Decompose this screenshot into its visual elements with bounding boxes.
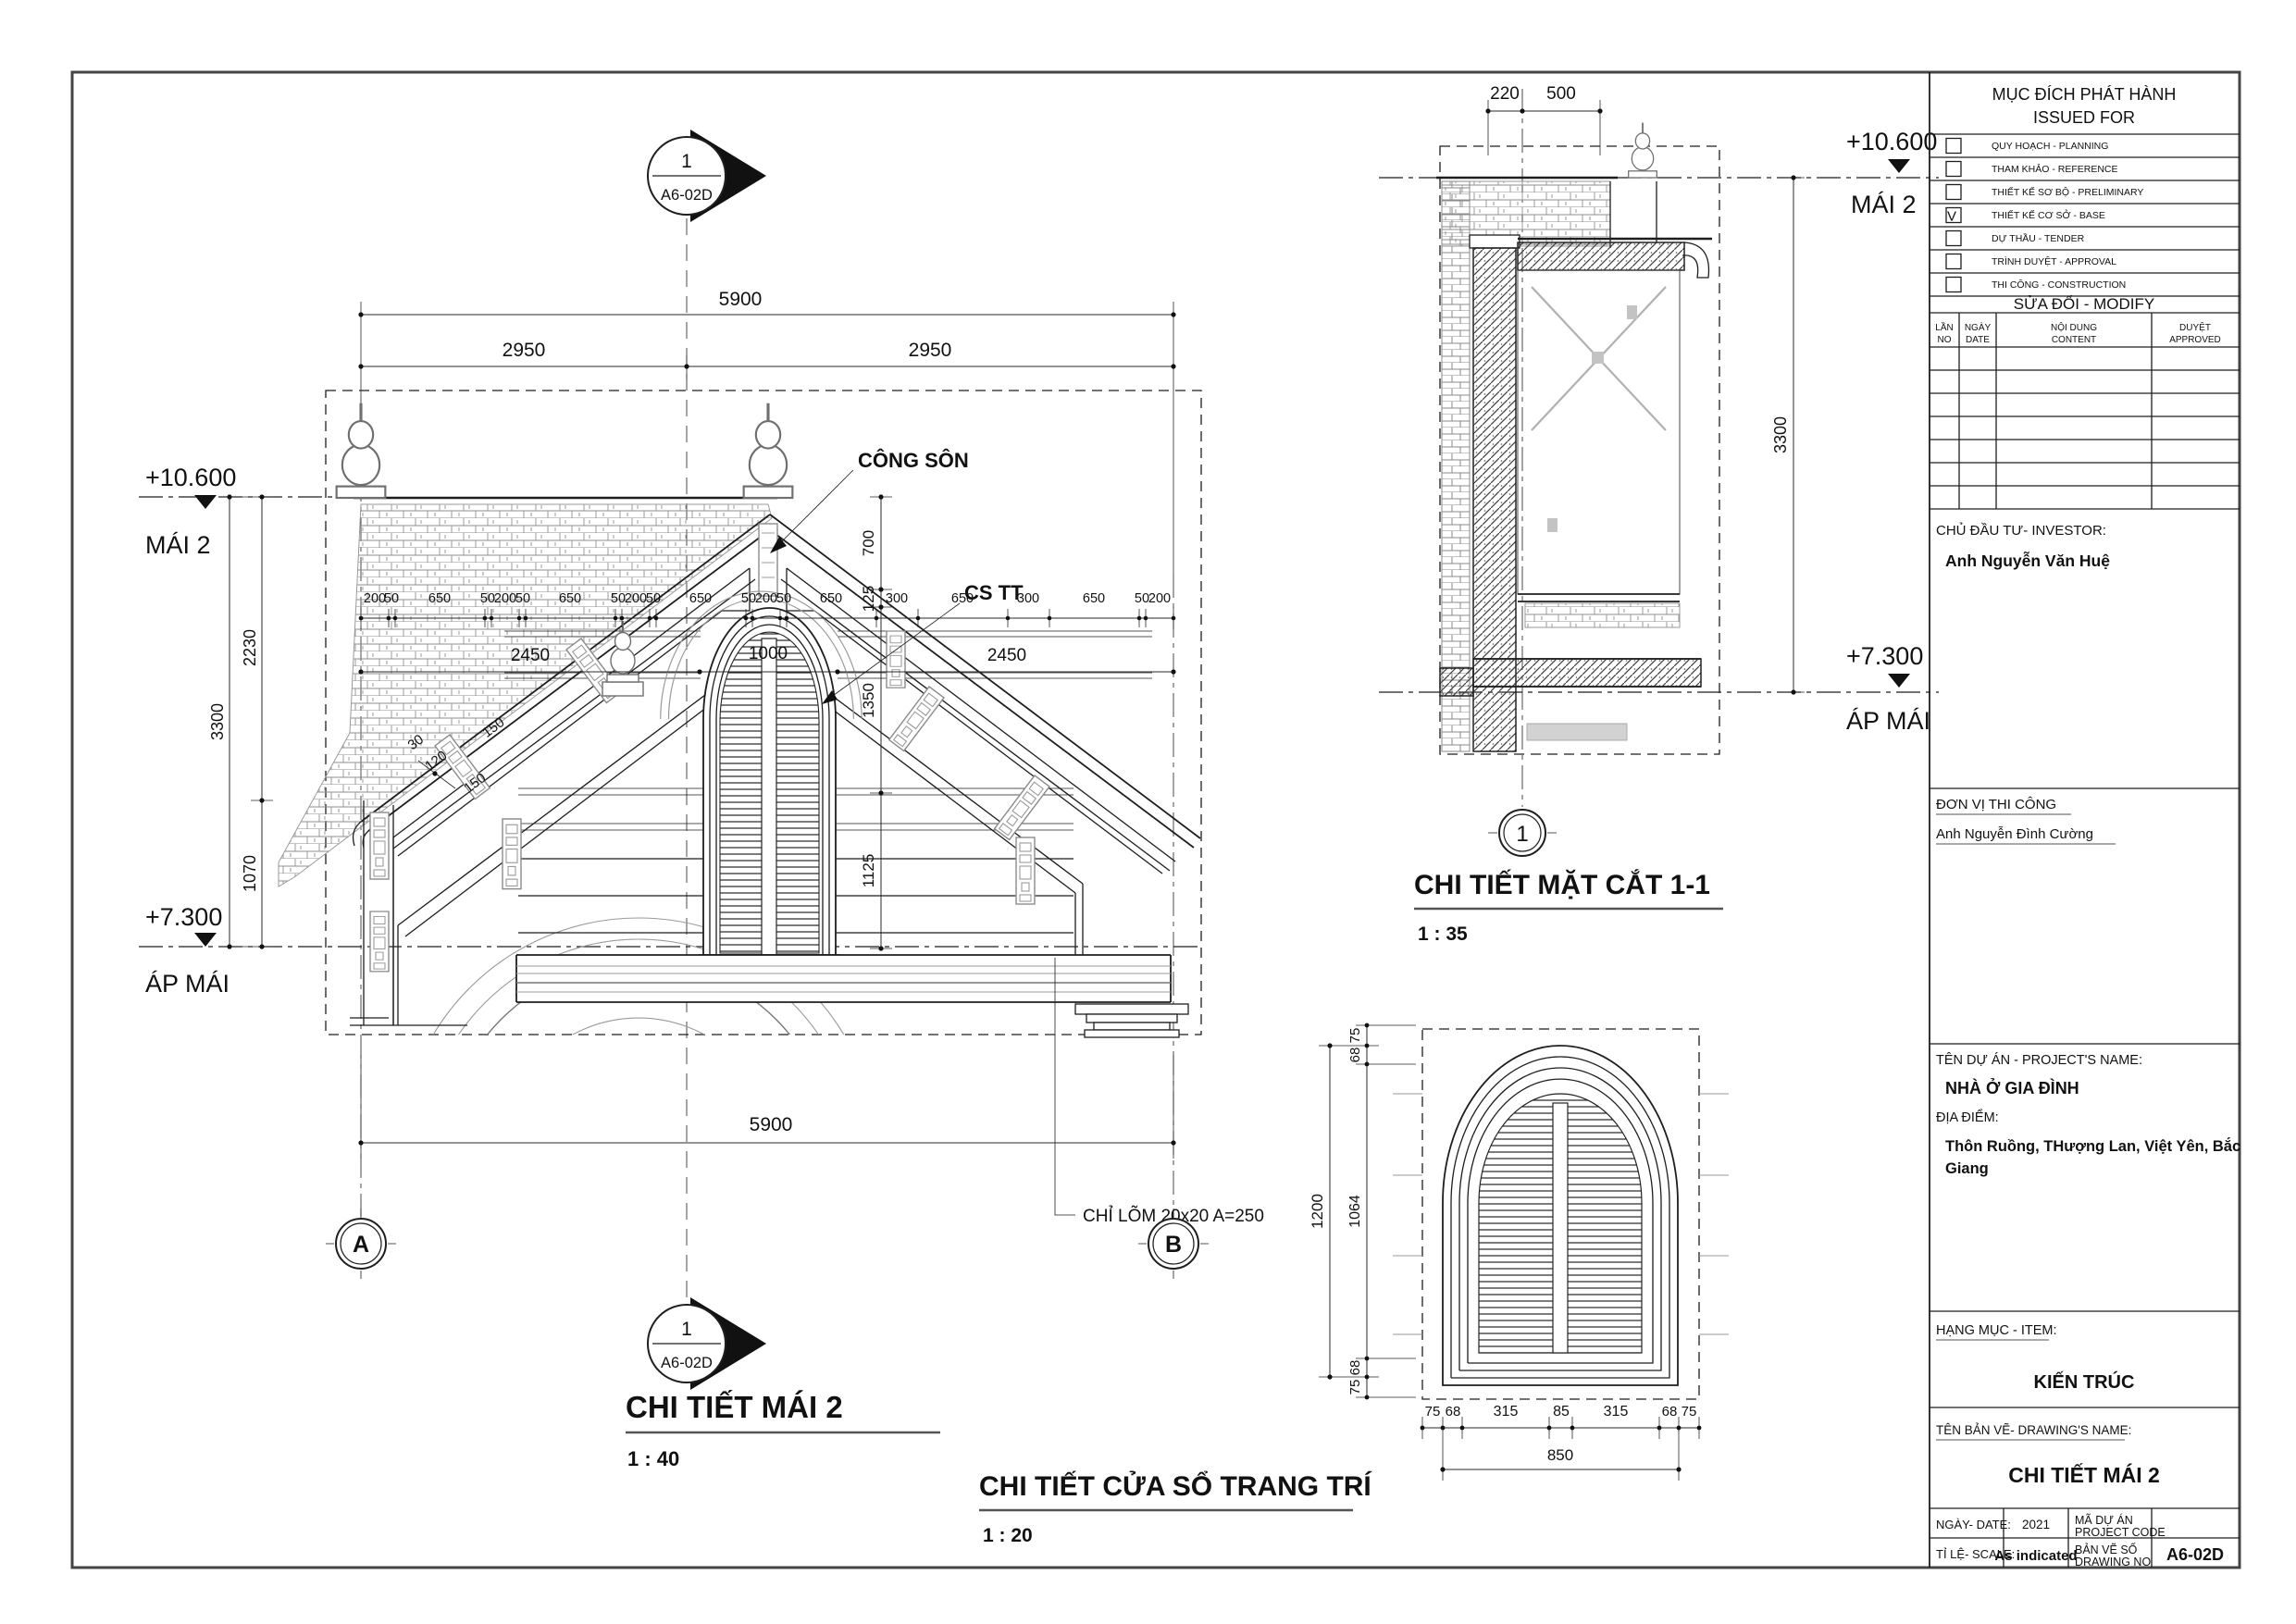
gourd-finial-icon: [744, 403, 793, 498]
item-value: KIẾN TRÚC: [2034, 1370, 2135, 1393]
date-label: NGÀY- DATE:: [1936, 1518, 2011, 1531]
checkbox-approval: [1946, 254, 1961, 269]
dim-label: 125: [860, 586, 877, 612]
dim-label: 50: [480, 591, 495, 606]
contractor-section: ĐƠN VỊ THI CÔNG Anh Nguyễn Đình Cường: [1936, 797, 2116, 844]
level-triangle-icon: [1888, 159, 1910, 173]
project-section: TÊN DỰ ÁN - PROJECT'S NAME: NHÀ Ở GIA ĐÌ…: [1936, 1052, 2240, 1177]
callout-sheet: A6-02D: [661, 1355, 713, 1371]
issued-for-section: MỤC ĐÍCH PHÁT HÀNH ISSUED FOR V QUY HOẠC…: [1946, 85, 2176, 292]
dim-label: 50: [646, 591, 661, 606]
investor-label: CHỦ ĐẦU TƯ- INVESTOR:: [1936, 522, 2106, 539]
dim-label: 3300: [1771, 416, 1790, 453]
modify-col-header: CONTENT: [2052, 335, 2096, 345]
dim-label: 200: [364, 591, 386, 606]
grid-letter: 1: [1516, 822, 1528, 847]
dim-label: 650: [559, 591, 581, 606]
dim-label: 700: [860, 530, 877, 556]
grid-letter: A: [353, 1232, 369, 1258]
dim-label: 68: [1446, 1404, 1461, 1419]
dim-label: 650: [820, 591, 842, 606]
modify-col-header: DUYỆT: [2179, 321, 2211, 333]
dim-label: 2450: [987, 646, 1026, 665]
drawing-no-value: A6-02D: [2166, 1545, 2224, 1564]
view-title: CHI TIẾT MÁI 2: [626, 1390, 843, 1424]
project-label: TÊN DỰ ÁN - PROJECT'S NAME:: [1936, 1052, 2142, 1068]
carved-post: [370, 812, 389, 879]
section-gray-block: [1527, 724, 1627, 740]
window-left-dimensions: 1200 75 68 1064 68 75: [1309, 1023, 1416, 1400]
dim-label: 1125: [860, 854, 877, 888]
modify-section: SỬA ĐỔI - MODIFY LẦN NO NGÀY DATE NỘI DU…: [1935, 295, 2221, 345]
view-scale: 1 : 35: [1418, 924, 1468, 945]
carved-post: [1016, 837, 1035, 904]
drawing-sheet: 5900 2950 2950 200 50 650 50 200 50 650 …: [0, 0, 2296, 1624]
checkbox-planning: [1946, 139, 1961, 154]
carved-post: [370, 911, 389, 972]
window-mullion: [762, 638, 776, 955]
dim-label: 3300: [208, 703, 227, 740]
gourd-finial-icon: [337, 403, 386, 498]
section-detail-view: 220 500 3300 +10.600 MÁI 2 +7.300 ÁP MÁI: [1379, 84, 1939, 945]
section-top-slab: [1518, 242, 1684, 270]
dim-label: 68: [1662, 1404, 1678, 1419]
view-title: CHI TIẾT MẶT CẮT 1-1: [1414, 869, 1710, 900]
level-name: ÁP MÁI: [1846, 707, 1930, 735]
dim-label: 50: [741, 591, 756, 606]
dim-label: 68: [1347, 1048, 1363, 1063]
dim-label: 75: [1347, 1380, 1363, 1395]
gourd-finial-icon: [1629, 123, 1657, 178]
section-attic-void: [1518, 270, 1680, 594]
section-slab-step: [1440, 668, 1473, 696]
investor-name: Anh Nguyễn Văn Huệ: [1945, 551, 2110, 570]
annotation-label: CS TT: [964, 581, 1024, 604]
right-column-dimensions: 700 125 1350 1125: [860, 494, 892, 950]
dim-label: 200: [625, 591, 647, 606]
dim-label: 850: [1547, 1446, 1573, 1464]
checkbox-construction: [1946, 278, 1961, 292]
dim-label: 85: [1553, 1404, 1570, 1419]
dim-label: 1000: [749, 644, 788, 663]
issued-item-label: QUY HOẠCH - PLANNING: [1992, 141, 2108, 152]
left-wall: [350, 800, 467, 1025]
section-view-title: CHI TIẾT MẶT CẮT 1-1 1 : 35: [1414, 869, 1723, 945]
dim-label: 220: [1490, 84, 1520, 104]
dim-label: 50: [515, 591, 530, 606]
modify-col-header: LẦN: [1935, 321, 1953, 333]
dim-label: 50: [611, 591, 626, 606]
section-wall-cap: [1470, 235, 1520, 248]
section-top-dimensions: 220 500: [1485, 84, 1602, 155]
issued-item-label: DỰ THẦU - TENDER: [1992, 232, 2085, 244]
issued-item-label: THIẾT KẾ CƠ SỞ - BASE: [1992, 209, 2105, 221]
drawing-no-label-vi: BẢN VẼ SỐ: [2075, 1543, 2138, 1556]
left-column-dimensions: 3300 2230 1070: [208, 494, 273, 948]
dim-label: 75: [1425, 1404, 1441, 1419]
modify-col-header: NGÀY: [1965, 321, 1992, 333]
section-ceiling-lines: [1518, 594, 1680, 601]
check-mark: V: [1947, 209, 1956, 225]
section-grid-bubble-1: 1: [1488, 810, 1557, 856]
dim-label: 75: [1347, 1028, 1363, 1044]
finial-bracket: [602, 682, 643, 696]
location-line1: Thôn Ruồng, THượng Lan, Việt Yên, Bắc: [1945, 1137, 2240, 1155]
sheet-canvas: 5900 2950 2950 200 50 650 50 200 50 650 …: [0, 0, 2296, 1624]
detail-callout-top: 1 A6-02D: [648, 130, 766, 222]
issued-item-label: THI CÔNG - CONSTRUCTION: [1992, 279, 2126, 291]
dim-label: 75: [1682, 1404, 1697, 1419]
roof-detail-view: 5900 2950 2950 200 50 650 50 200 50 650 …: [139, 130, 1264, 1470]
item-section: HẠNG MỤC - ITEM: KIẾN TRÚC: [1936, 1323, 2134, 1393]
grid-letter: B: [1165, 1232, 1182, 1258]
drawing-no-label-en: DRAWING NO: [2075, 1556, 2151, 1568]
callout-number: 1: [681, 1319, 692, 1340]
title-block-footer: NGÀY- DATE: 2021 MÃ DỰ ÁN PROJECT CODE T…: [1936, 1513, 2224, 1568]
section-lower-slab: [1473, 659, 1701, 687]
dim-label: 315: [1604, 1404, 1629, 1419]
issued-for-title-vi: MỤC ĐÍCH PHÁT HÀNH: [1992, 85, 2177, 104]
location-line2: Giang: [1945, 1160, 1989, 1177]
section-brick-parapet: [1442, 181, 1470, 751]
dim-label: 300: [886, 591, 908, 606]
dim-label: 2450: [511, 646, 550, 665]
window-bottom-dimensions: 75 68 315 85 315 68 75 850: [1421, 1404, 1702, 1481]
dim-label: 650: [1083, 591, 1105, 606]
detail-callout-bottom: 1 A6-02D: [648, 1297, 766, 1390]
window-view-title: CHI TIẾT CỬA SỔ TRANG TRÍ 1 : 20: [979, 1470, 1371, 1546]
dim-label: 2950: [503, 340, 546, 361]
callout-sheet: A6-02D: [661, 187, 713, 204]
modify-col-header: NO: [1938, 335, 1952, 345]
contractor-name: Anh Nguyễn Đình Cường: [1936, 826, 2093, 842]
modify-col-header: DATE: [1966, 335, 1990, 345]
dim-label: 50: [1135, 591, 1149, 606]
level-elevation: +7.300: [1846, 642, 1923, 670]
dim-label: 1064: [1347, 1195, 1363, 1228]
roof-shingles: [279, 504, 772, 886]
view-scale: 1 : 20: [983, 1525, 1033, 1546]
checkbox-reference: [1946, 162, 1961, 177]
section-height-dimension: 3300: [1771, 175, 1805, 694]
dim-label: 5900: [750, 1114, 793, 1135]
title-block: MỤC ĐÍCH PHÁT HÀNH ISSUED FOR V QUY HOẠC…: [1930, 72, 2240, 1568]
modify-title: SỬA ĐỔI - MODIFY: [2014, 295, 2154, 313]
entablature-bg: [516, 955, 1171, 1002]
roof-view-title: CHI TIẾT MÁI 2 1 : 40: [626, 1390, 940, 1470]
issued-for-title-en: ISSUED FOR: [2033, 108, 2135, 127]
level-elevation: +7.300: [145, 903, 222, 931]
dim-label: 2230: [241, 629, 259, 666]
view-scale: 1 : 40: [627, 1447, 679, 1470]
kingpost: [759, 524, 777, 596]
project-code-label-vi: MÃ DỰ ÁN: [2075, 1513, 2133, 1527]
view-title: CHI TIẾT CỬA SỔ TRANG TRÍ: [979, 1470, 1371, 1502]
level-triangle-icon: [194, 495, 217, 509]
issued-item-label: THAM KHẢO - REFERENCE: [1992, 163, 2118, 175]
dim-label: 650: [428, 591, 451, 606]
dim-label: 1350: [860, 683, 877, 718]
drawing-name-value: CHI TIẾT MÁI 2: [2008, 1462, 2160, 1487]
bottom-dimension: 5900: [358, 1055, 1175, 1159]
carved-post: [503, 819, 521, 889]
section-cornice: [1682, 242, 1708, 278]
investor-section: CHỦ ĐẦU TƯ- INVESTOR: Anh Nguyễn Văn Huệ: [1936, 522, 2110, 570]
level-elevation: +10.600: [1846, 128, 1937, 155]
contractor-label: ĐƠN VỊ THI CÔNG: [1936, 797, 2056, 812]
level-name: MÁI 2: [145, 531, 211, 559]
section-level-apmai: +7.300 ÁP MÁI: [1846, 642, 1930, 735]
checkbox-preliminary: [1946, 185, 1961, 200]
issued-item-label: TRÌNH DUYỆT - APPROVAL: [1992, 255, 2116, 267]
dim-label: 68: [1347, 1360, 1363, 1376]
level-name: MÁI 2: [1851, 191, 1917, 218]
dim-label: 315: [1494, 1404, 1519, 1419]
item-label: HẠNG MỤC - ITEM:: [1936, 1323, 2057, 1338]
dim-label: 5900: [719, 289, 763, 310]
dim-label: 200: [755, 591, 777, 606]
dim-label: 50: [384, 591, 399, 606]
level-elevation: +10.600: [145, 464, 236, 491]
level-marker-mai2: +10.600 MÁI 2: [145, 464, 236, 559]
level-name: ÁP MÁI: [145, 970, 230, 998]
dim-label: 200: [494, 591, 516, 606]
level-triangle-icon: [1888, 674, 1910, 688]
dim-label: 500: [1546, 84, 1576, 104]
project-code-label-en: PROJECT CODE: [2075, 1526, 2166, 1539]
dim-label: 2950: [909, 340, 952, 361]
project-name: NHÀ Ở GIA ĐÌNH: [1945, 1078, 2079, 1097]
dim-label: 1200: [1309, 1194, 1326, 1229]
dim-label: 50: [776, 591, 791, 606]
column-capital: [1075, 1004, 1188, 1037]
level-marker-apmai: +7.300 ÁP MÁI: [145, 903, 230, 998]
checkbox-tender: [1946, 231, 1961, 246]
section-lower-shingles: [1525, 603, 1680, 627]
carved-post: [887, 631, 905, 688]
drawing-name-section: TÊN BẢN VẼ- DRAWING'S NAME: CHI TIẾT MÁI…: [1936, 1423, 2160, 1487]
issued-item-label: THIẾT KẾ SƠ BỘ - PRELIMINARY: [1992, 186, 2143, 198]
dim-label: 1070: [241, 855, 259, 892]
drawing-name-label: TÊN BẢN VẼ- DRAWING'S NAME:: [1936, 1423, 2131, 1437]
modify-col-header: NỘI DUNG: [2051, 321, 2097, 333]
scale-value: As indicated: [1994, 1548, 2077, 1564]
callout-number: 1: [681, 151, 692, 172]
location-label: ĐỊA ĐIỂM:: [1936, 1109, 1999, 1125]
dim-label: 200: [1148, 591, 1171, 606]
window-detail-view: 1200 75 68 1064 68 75 75 68 315 85 315 6…: [979, 1023, 1729, 1546]
modify-col-header: APPROVED: [2169, 335, 2221, 345]
grid-bubble-a: A: [326, 1209, 396, 1279]
carved-post: [889, 687, 944, 751]
window-mullion: [1553, 1103, 1568, 1353]
level-triangle-icon: [194, 933, 217, 947]
date-value: 2021: [2022, 1518, 2050, 1531]
dim-label: 650: [689, 591, 712, 606]
annotation-label: CÔNG SÔN: [858, 449, 969, 472]
section-level-mai2: +10.600 MÁI 2: [1846, 128, 1937, 218]
